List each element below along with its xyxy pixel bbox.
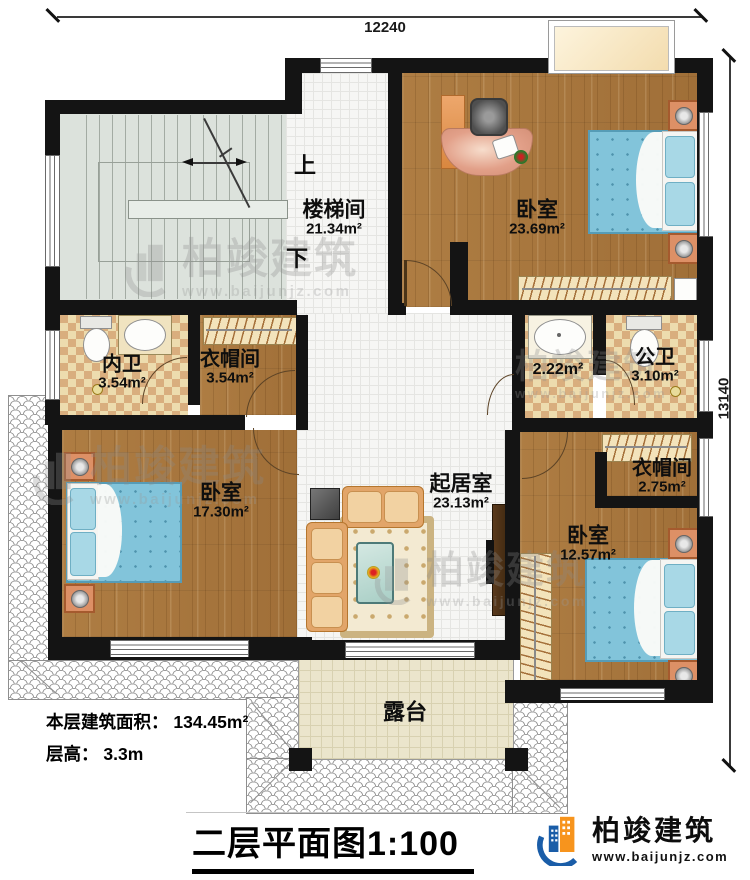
wall — [45, 100, 302, 114]
wall — [45, 300, 297, 315]
window-sliding-door — [345, 642, 475, 658]
wall — [595, 452, 607, 502]
room-area: 3.54m² — [98, 375, 146, 392]
desk-chair — [470, 98, 508, 136]
wardrobe — [520, 553, 552, 690]
table-flowers — [367, 566, 380, 579]
room-name: 公卫 — [631, 347, 679, 368]
sofa-cushion — [384, 491, 419, 523]
basin-tap — [557, 333, 561, 337]
room-name: 楼梯间 — [303, 200, 366, 222]
pillow — [664, 611, 695, 655]
stair-direction-line — [192, 162, 238, 164]
room-area: 21.34m² — [303, 222, 366, 239]
cloak-rail — [203, 317, 297, 345]
window — [699, 340, 713, 412]
room-area: 17.30m² — [193, 505, 249, 522]
bay-window-glass — [554, 26, 669, 71]
window — [699, 112, 713, 237]
window — [45, 155, 60, 267]
stair-arrowhead — [236, 158, 247, 166]
title-text: 二层平面图 — [192, 825, 367, 863]
window — [110, 640, 249, 657]
stair-down-label: 下 — [286, 241, 308, 273]
room-label-terrace: 露台 — [383, 700, 427, 723]
nightstand — [64, 584, 95, 613]
closet-rail-bar — [522, 288, 666, 290]
sofa-cushion — [347, 491, 382, 523]
corner-table — [310, 488, 340, 520]
room-area: 3.10m² — [631, 368, 679, 385]
sofa-cushion — [311, 528, 343, 560]
tv — [486, 540, 494, 584]
lamp-icon — [71, 590, 89, 608]
room-area: 23.13m² — [430, 496, 493, 513]
nightstand — [668, 528, 700, 559]
room-name: 内卫 — [98, 354, 146, 375]
room-label-public-bath: 公卫 3.10m² — [631, 347, 679, 385]
title-scale: 1:100 — [367, 825, 459, 863]
pillow — [665, 182, 695, 226]
wall — [450, 300, 713, 315]
nightstand — [668, 100, 700, 131]
room-label-stairwell: 楼梯间 21.34m² — [303, 200, 366, 239]
wall — [595, 496, 697, 508]
room-name: 起居室 — [430, 474, 493, 496]
wall — [388, 73, 402, 307]
dimension-top-value: 12240 — [355, 19, 415, 36]
room-name: 卧室 — [193, 483, 249, 505]
lamp-icon — [675, 535, 693, 553]
pillow — [70, 532, 96, 576]
room-label-bedroom-bottomleft: 卧室 17.30m² — [193, 483, 249, 522]
pillow — [70, 488, 96, 530]
brand-name: 柏竣建筑 — [592, 817, 728, 845]
sofa-cushion — [311, 596, 343, 628]
room-area: 12.57m² — [560, 548, 616, 565]
room-area: 2.75m² — [632, 479, 692, 496]
room-name: 衣帽间 — [200, 349, 260, 370]
room-label-wash-area: 2.22m² — [533, 361, 584, 379]
room-name: 衣帽间 — [632, 458, 692, 479]
window — [699, 438, 713, 517]
lamp-icon — [675, 107, 693, 125]
wall — [505, 430, 520, 660]
wall — [512, 418, 713, 432]
room-label-living: 起居室 23.13m² — [430, 474, 493, 513]
pillow — [664, 564, 695, 608]
title-underline — [192, 869, 474, 874]
wall — [48, 415, 62, 660]
wardrobe-bar — [534, 556, 536, 685]
lamp-icon — [71, 458, 89, 476]
room-area: 3.54m² — [200, 370, 260, 387]
cloak-rail-bar — [605, 446, 687, 448]
wall — [188, 315, 200, 405]
window — [560, 688, 665, 700]
room-name: 卧室 — [509, 200, 565, 222]
room-area: 23.69m² — [509, 222, 565, 239]
room-label-cloak-left: 衣帽间 3.54m² — [200, 349, 260, 387]
washbasin — [124, 319, 166, 351]
room-label-inner-bath: 内卫 3.54m² — [98, 354, 146, 392]
drawing-title: 二层平面图1:100 — [192, 816, 474, 874]
stair-up-label: 上 — [294, 148, 316, 180]
washbasin — [534, 319, 586, 355]
floor-plan: 柏竣建筑 www.baijunjz.com 柏竣建筑 www.baijunjz.… — [0, 0, 750, 880]
window — [320, 58, 372, 73]
pillow — [665, 136, 695, 178]
cloak-rail-bar — [206, 329, 292, 331]
floor-area-text: 本层建筑面积： 134.45m² — [46, 706, 248, 738]
nightstand — [668, 233, 700, 264]
floor-height-text: 层高： 3.3m — [46, 738, 248, 770]
room-name: 卧室 — [560, 526, 616, 548]
stair-landing — [128, 200, 288, 219]
brand-block: 柏竣建筑 www.baijunjz.com — [536, 814, 728, 866]
lamp-icon — [675, 240, 693, 258]
brand-logo-icon — [536, 814, 584, 866]
floor-info: 本层建筑面积： 134.45m² 层高： 3.3m — [46, 706, 248, 771]
bay-window — [548, 20, 675, 74]
room-name: 露台 — [383, 700, 427, 723]
room-label-bedroom-topright: 卧室 23.69m² — [509, 200, 565, 239]
door-leaf — [404, 260, 407, 306]
wall — [296, 315, 308, 430]
window — [45, 330, 60, 400]
terrace-pillar — [289, 748, 312, 771]
desk-plant — [514, 150, 528, 164]
wall — [48, 415, 245, 430]
dimension-right-value: 13140 — [716, 369, 733, 429]
wall — [593, 315, 606, 375]
room-label-cloak-right: 衣帽间 2.75m² — [632, 458, 692, 496]
brand-url: www.baijunjz.com — [592, 849, 728, 864]
sofa-top — [342, 486, 424, 528]
wall — [285, 58, 302, 114]
title-topline — [186, 812, 478, 813]
stair-arrowhead — [182, 158, 193, 166]
room-area: 2.22m² — [533, 361, 584, 379]
sofa-cushion — [311, 562, 343, 594]
room-label-bedroom-bottomright: 卧室 12.57m² — [560, 526, 616, 565]
roof-bottom-left — [8, 660, 300, 700]
dimension-line-top — [57, 16, 703, 18]
terrace-pillar — [505, 748, 528, 771]
floor-drain — [670, 386, 681, 397]
nightstand — [64, 452, 95, 481]
toilet-tank — [626, 316, 662, 330]
sofa-left — [306, 522, 348, 632]
